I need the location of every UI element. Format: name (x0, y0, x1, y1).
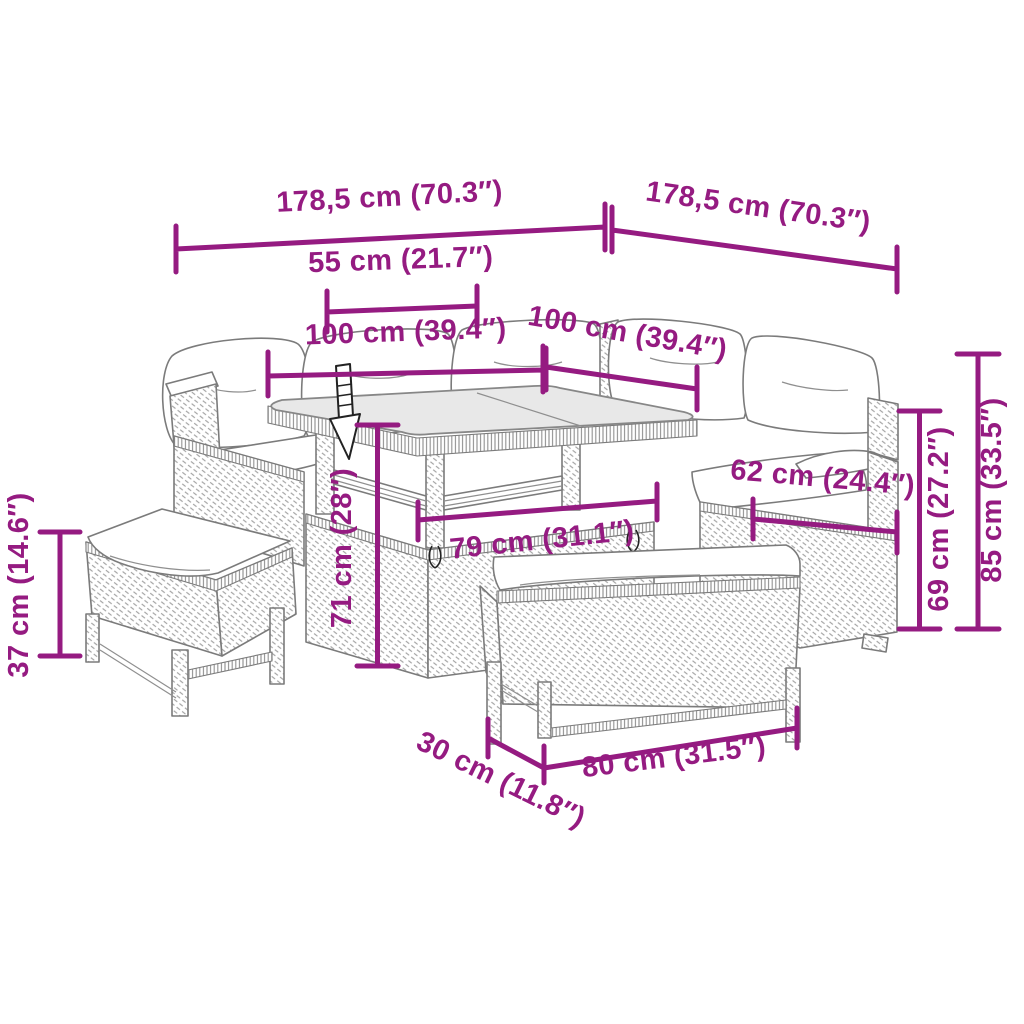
dim-bench-height: 37 cm (14.6″) (3, 492, 80, 677)
sofa-foot (862, 634, 888, 652)
dimension-diagram-svg: 178,5 cm (70.3″) 178,5 cm (70.3″) 55 cm … (0, 0, 1024, 1024)
dim-total-height: 85 cm (33.5″) (957, 354, 1008, 629)
dim-label: 55 cm (21.7″) (308, 241, 494, 279)
dimension-annotations: 178,5 cm (70.3″) 178,5 cm (70.3″) 55 cm … (3, 175, 1008, 834)
dim-label: 69 cm (27.2″) (923, 426, 955, 611)
center-bench-drawing (480, 545, 800, 744)
dim-label: 71 cm (28″) (326, 468, 358, 628)
sofa-right-arm-post (868, 398, 898, 460)
product-image-canvas: 178,5 cm (70.3″) 178,5 cm (70.3″) 55 cm … (0, 0, 1024, 1024)
dim-label: 178,5 cm (70.3″) (276, 175, 504, 219)
left-bench-drawing (86, 509, 296, 716)
dim-label: 85 cm (33.5″) (976, 397, 1008, 582)
dim-line (40, 532, 80, 656)
dim-sofa-side-right: 178,5 cm (70.3″) (612, 175, 897, 292)
table-leg (426, 440, 444, 548)
table-lower-shelf (334, 470, 562, 510)
left-bench-leg (172, 650, 188, 716)
sofa-back-pillow (743, 336, 879, 433)
left-bench-leg (86, 614, 99, 662)
dim-label: 37 cm (14.6″) (3, 492, 35, 677)
dim-label: 80 cm (31.5″) (580, 730, 768, 784)
dim-label: 178,5 cm (70.3″) (644, 175, 873, 238)
dim-arm-height: 69 cm (27.2″) (899, 411, 955, 629)
left-bench-leg (270, 608, 284, 684)
center-bench-leg (538, 682, 551, 738)
